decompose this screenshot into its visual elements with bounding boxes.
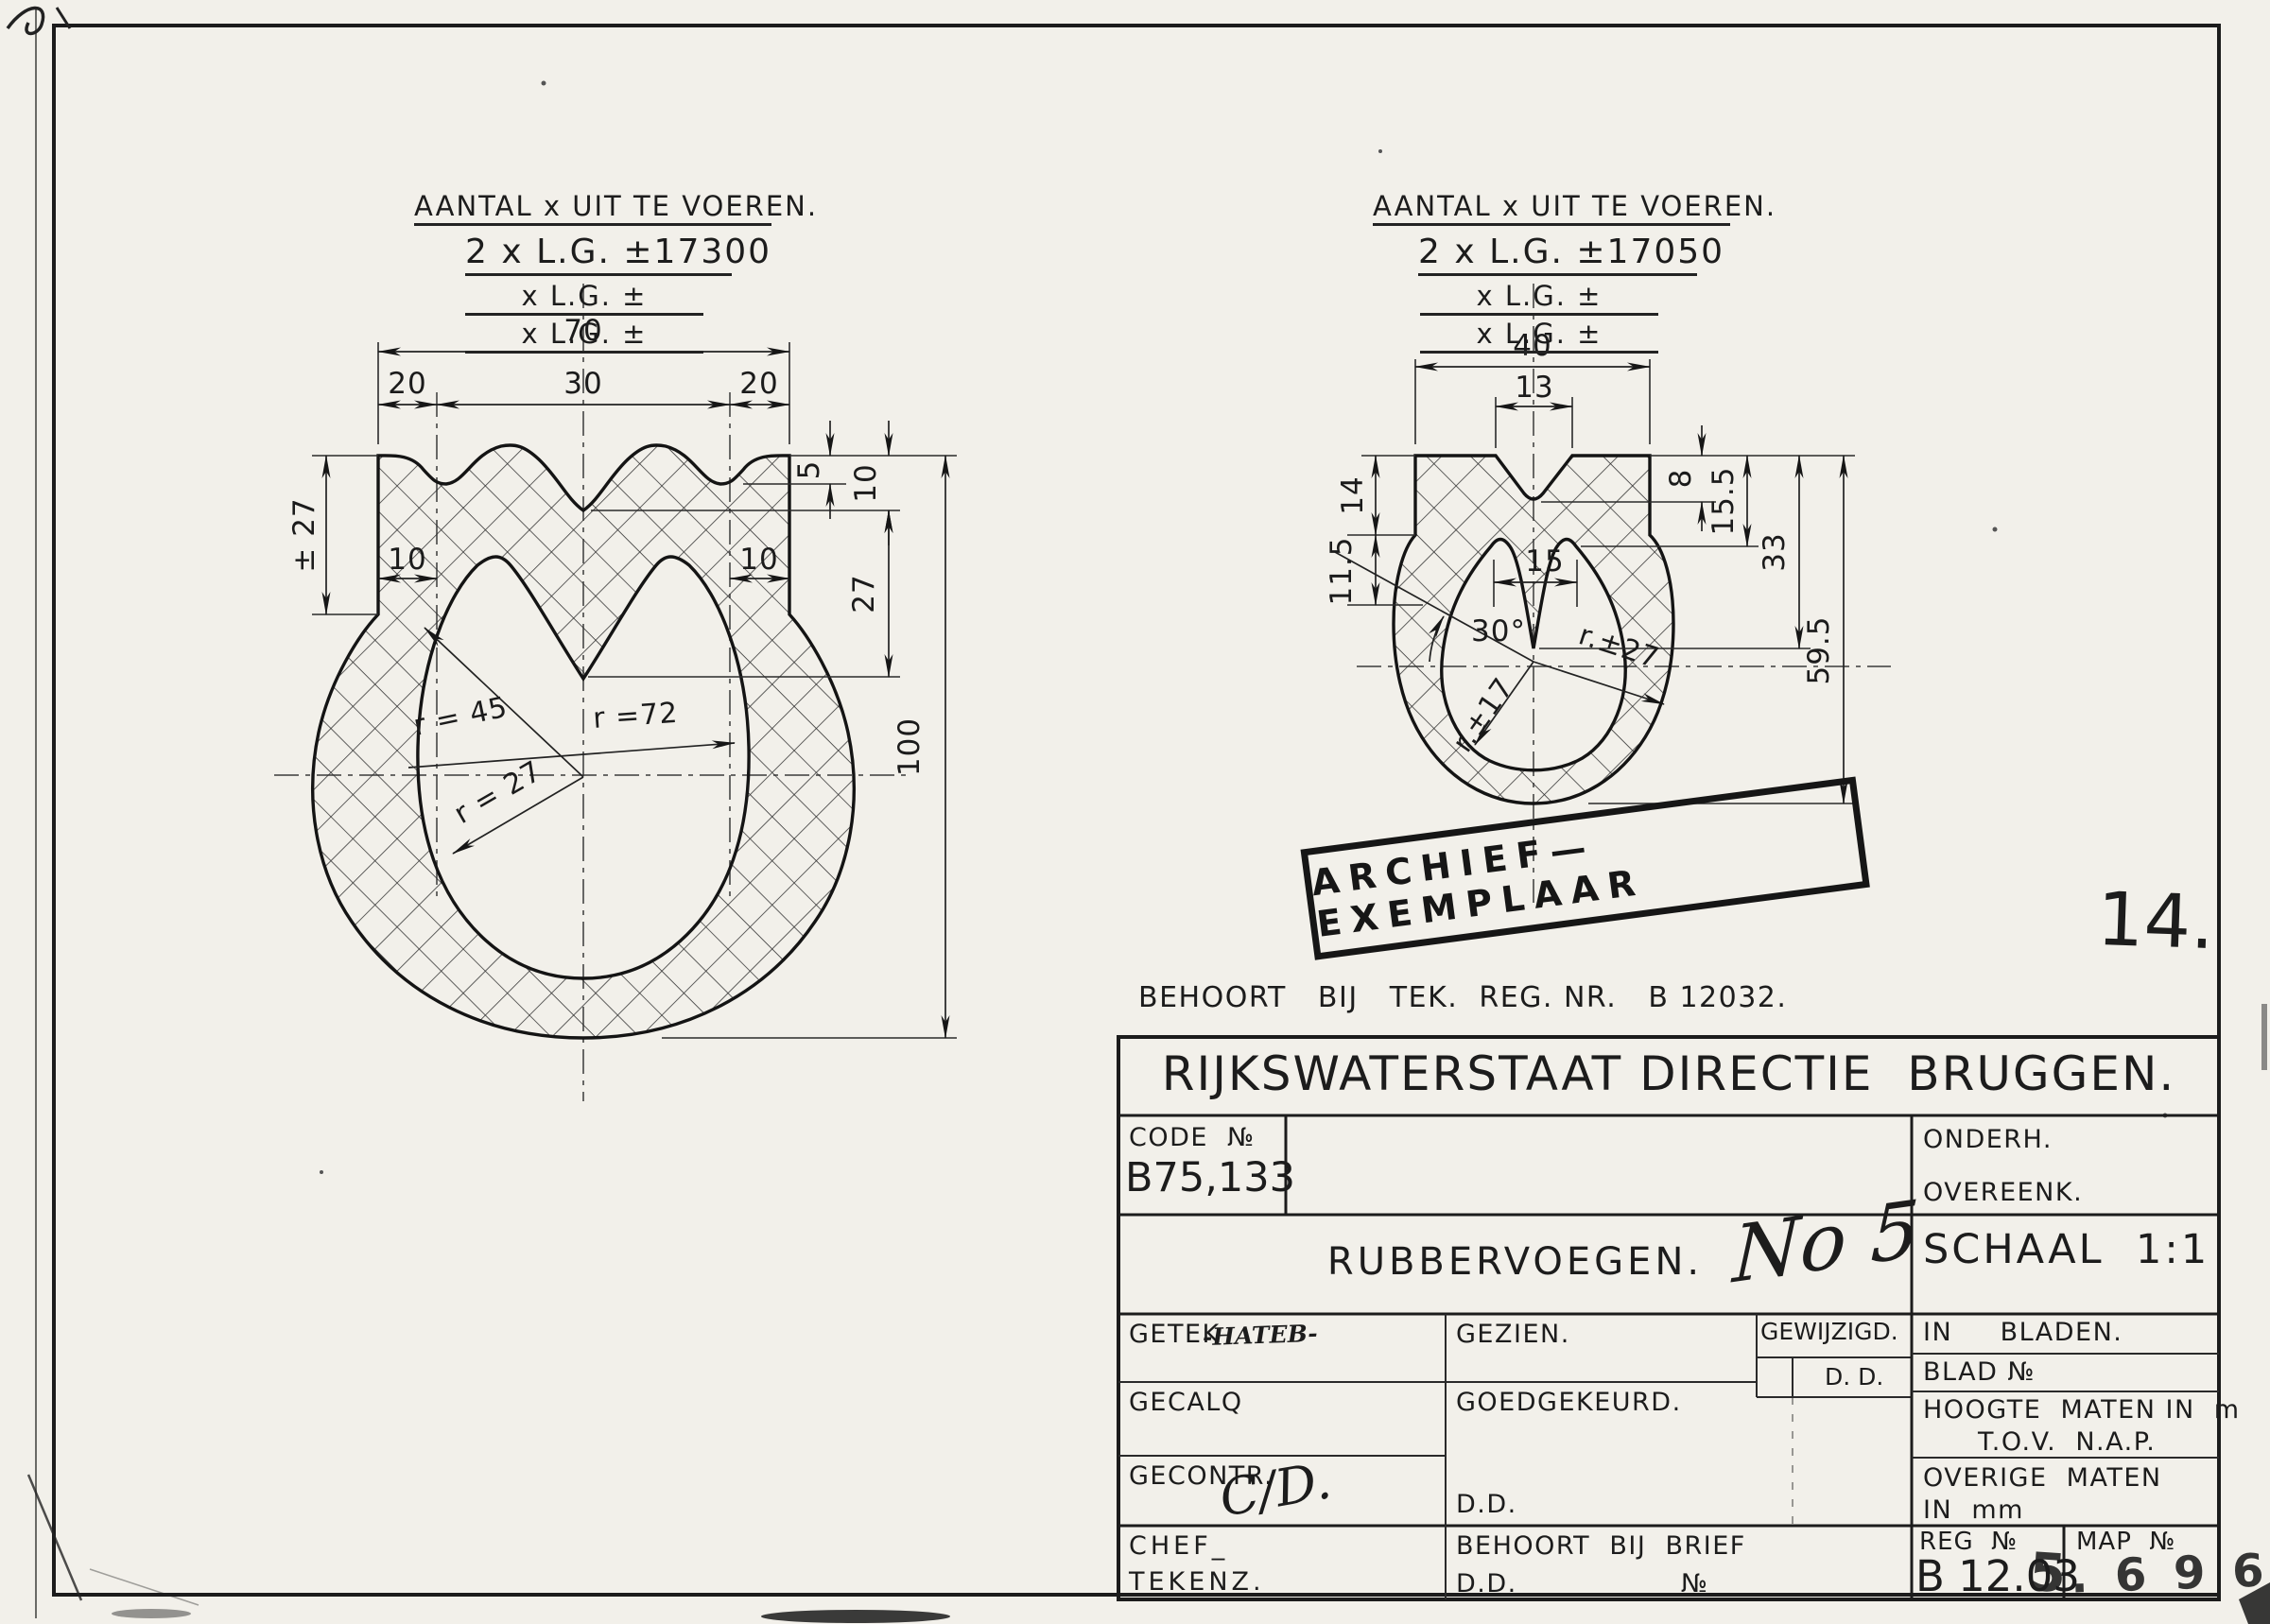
- chef-label-line2: TEKENZ.: [1129, 1569, 1265, 1596]
- dim-label-59-5: 59.5: [1802, 615, 1836, 684]
- dim-label-33: 33: [1758, 532, 1792, 571]
- dim-label-10-right: 10: [739, 543, 778, 577]
- left-profile-figure: 70 20 30 20 ± 27 10 10 5 10 27 100 r = 4…: [274, 284, 957, 1101]
- chef-label-line1: CHEF_: [1129, 1533, 1228, 1560]
- dim-label-27: 27: [847, 574, 881, 613]
- in-mm-label: IN mm: [1923, 1497, 2024, 1524]
- dim-label-20b: 20: [739, 367, 778, 401]
- dim-label-10-left: 10: [388, 543, 426, 577]
- dim-label-30: 30: [563, 367, 602, 401]
- in-bladen-label: IN BLADEN.: [1923, 1320, 2123, 1346]
- right-header-title: AANTAL x UIT TE VOEREN.: [1373, 192, 1730, 226]
- drawing-sheet: 70 20 30 20 ± 27 10 10 5 10 27 100 r = 4…: [0, 0, 2270, 1624]
- code-value: B75,133: [1125, 1157, 1295, 1200]
- right-header-qty: 2 x L.G. ±17050: [1418, 234, 1697, 276]
- code-label: CODE №: [1129, 1125, 1256, 1151]
- schaal-value: SCHAAL 1:1: [1923, 1229, 2209, 1271]
- blad-no-label: BLAD №: [1923, 1359, 2036, 1386]
- dd3-label: D.D.: [1456, 1571, 1517, 1598]
- dim-label-8: 8: [1664, 469, 1698, 489]
- overige-maten-label: OVERIGE MATEN: [1923, 1465, 2162, 1492]
- radius-label-45: r = 45: [410, 691, 511, 743]
- overeenk-label: OVEREENK.: [1923, 1180, 2083, 1206]
- dim-label-13: 13: [1515, 371, 1553, 405]
- map-value-stamped: . 6 9 6: [2070, 1546, 2270, 1601]
- dd2-label: D.D.: [1456, 1492, 1517, 1518]
- goedgekeurd-label: GOEDGEKEURD.: [1456, 1390, 1682, 1416]
- radius-label-27: r = 27: [449, 754, 548, 831]
- page-number: 14.: [2096, 882, 2216, 963]
- behoort-brief-label: BEHOORT BIJ BRIEF: [1456, 1533, 1746, 1560]
- dim-label-20a: 20: [388, 367, 426, 401]
- dim-label-100: 100: [892, 717, 927, 776]
- onderh-label: ONDERH.: [1923, 1127, 2053, 1153]
- org-title: RIJKSWATERSTAAT DIRECTIE BRUGGEN.: [1118, 1049, 2219, 1099]
- right-header-blank1: x L.G. ±: [1420, 282, 1658, 316]
- gezien-label: GEZIEN.: [1456, 1322, 1570, 1348]
- getek-signature: -HATEB-: [1203, 1322, 1318, 1350]
- dim-label-10-side: 10: [849, 463, 883, 502]
- left-header-blank1: x L.G. ±: [465, 282, 703, 316]
- angle-label-30: 30°: [1471, 614, 1526, 648]
- dim-label-14: 14: [1336, 475, 1370, 514]
- reg-value-stamped-digit: 5: [2027, 1546, 2068, 1603]
- hoogte-maten-label: HOOGTE MATEN IN m: [1923, 1397, 2241, 1424]
- dim-label-11-5: 11.5: [1325, 536, 1359, 605]
- no3-label: №: [1681, 1571, 1709, 1598]
- dim-label-15-5: 15.5: [1707, 466, 1741, 535]
- dim-label-15: 15: [1525, 544, 1564, 579]
- belongs-note: BEHOORT BIJ TEK. REG. NR. B 12032.: [1138, 983, 1787, 1013]
- radius-label-72: r =72: [592, 697, 679, 735]
- radius-label-17: r.±17: [1447, 672, 1521, 759]
- right-header-blank2: x L.G. ±: [1420, 320, 1658, 354]
- gecalq-label: GECALQ: [1129, 1390, 1243, 1416]
- left-header-qty: 2 x L.G. ±17300: [465, 234, 732, 276]
- dim-label-pm27: ± 27: [287, 497, 321, 572]
- tov-nap-label: T.O.V. N.A.P.: [1978, 1429, 2156, 1456]
- gewijzigd-label: GEWIJZIGD.: [1760, 1320, 1898, 1344]
- left-header-title: AANTAL x UIT TE VOEREN.: [414, 192, 771, 226]
- dim-label-5: 5: [792, 460, 826, 480]
- dd1-label: D. D.: [1825, 1365, 1883, 1390]
- left-header-blank2: x L.G. ±: [465, 320, 703, 354]
- right-profile-outline: [1394, 456, 1673, 803]
